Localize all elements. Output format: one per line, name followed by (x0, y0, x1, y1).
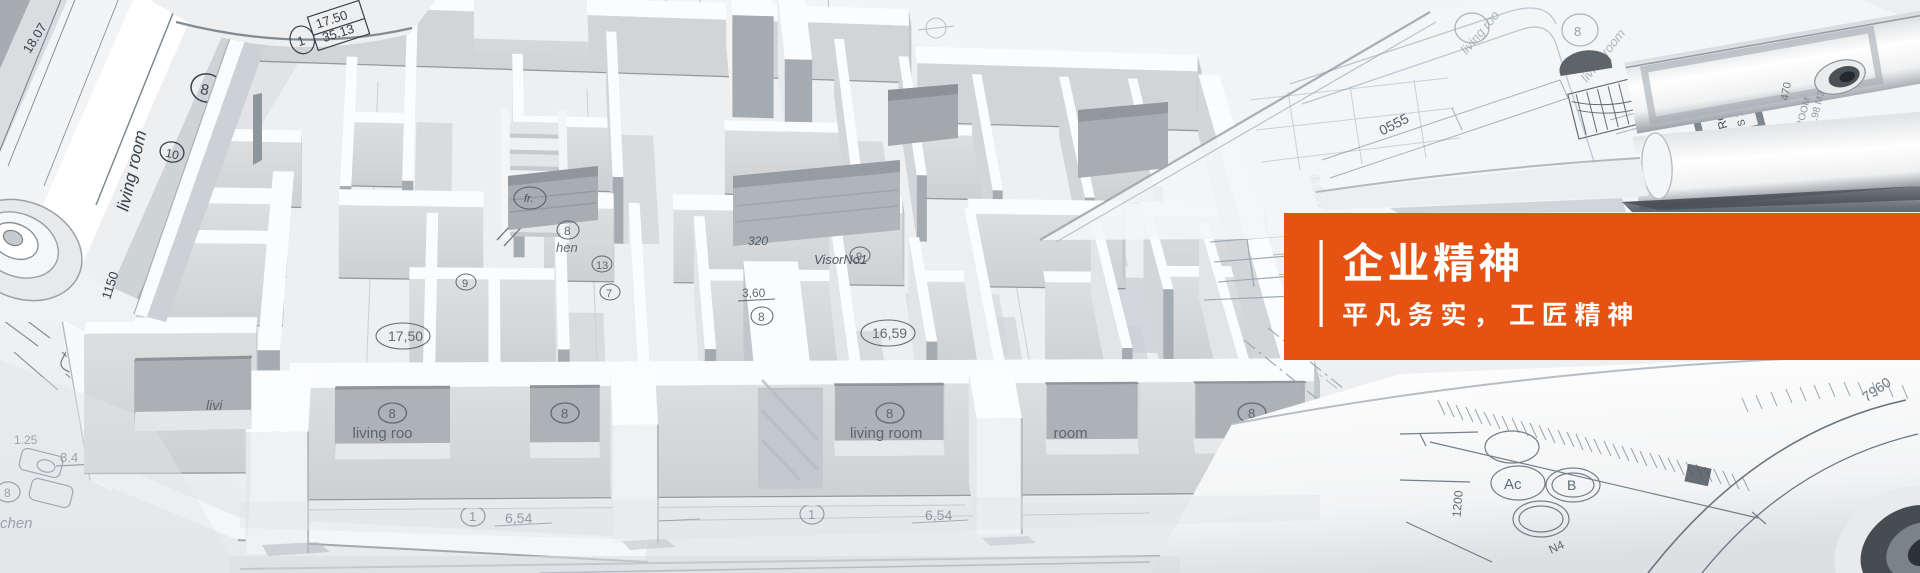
svg-text:living room: living room (850, 425, 923, 442)
svg-text:9: 9 (856, 251, 862, 263)
svg-text:fr.: fr. (524, 193, 533, 205)
svg-text:livi: livi (206, 397, 223, 413)
svg-text:8: 8 (886, 406, 893, 421)
svg-text:8: 8 (758, 310, 765, 324)
svg-text:320: 320 (748, 234, 768, 248)
svg-text:1200: 1200 (1449, 490, 1465, 518)
svg-text:Ac: Ac (1504, 476, 1522, 493)
svg-text:room: room (1054, 425, 1088, 442)
svg-text:3,60: 3,60 (742, 286, 766, 300)
svg-text:living roo: living roo (353, 425, 413, 442)
svg-text:8: 8 (561, 406, 568, 421)
svg-text:13: 13 (596, 260, 608, 272)
svg-text:8: 8 (564, 224, 571, 238)
svg-text:17,50: 17,50 (388, 328, 423, 344)
svg-text:8: 8 (1574, 24, 1581, 39)
svg-text:9: 9 (462, 278, 468, 290)
svg-text:16,59: 16,59 (872, 325, 907, 341)
svg-text:8: 8 (389, 406, 396, 421)
svg-text:B: B (1567, 477, 1576, 493)
svg-text:7: 7 (606, 288, 612, 300)
svg-text:hen: hen (556, 240, 578, 255)
